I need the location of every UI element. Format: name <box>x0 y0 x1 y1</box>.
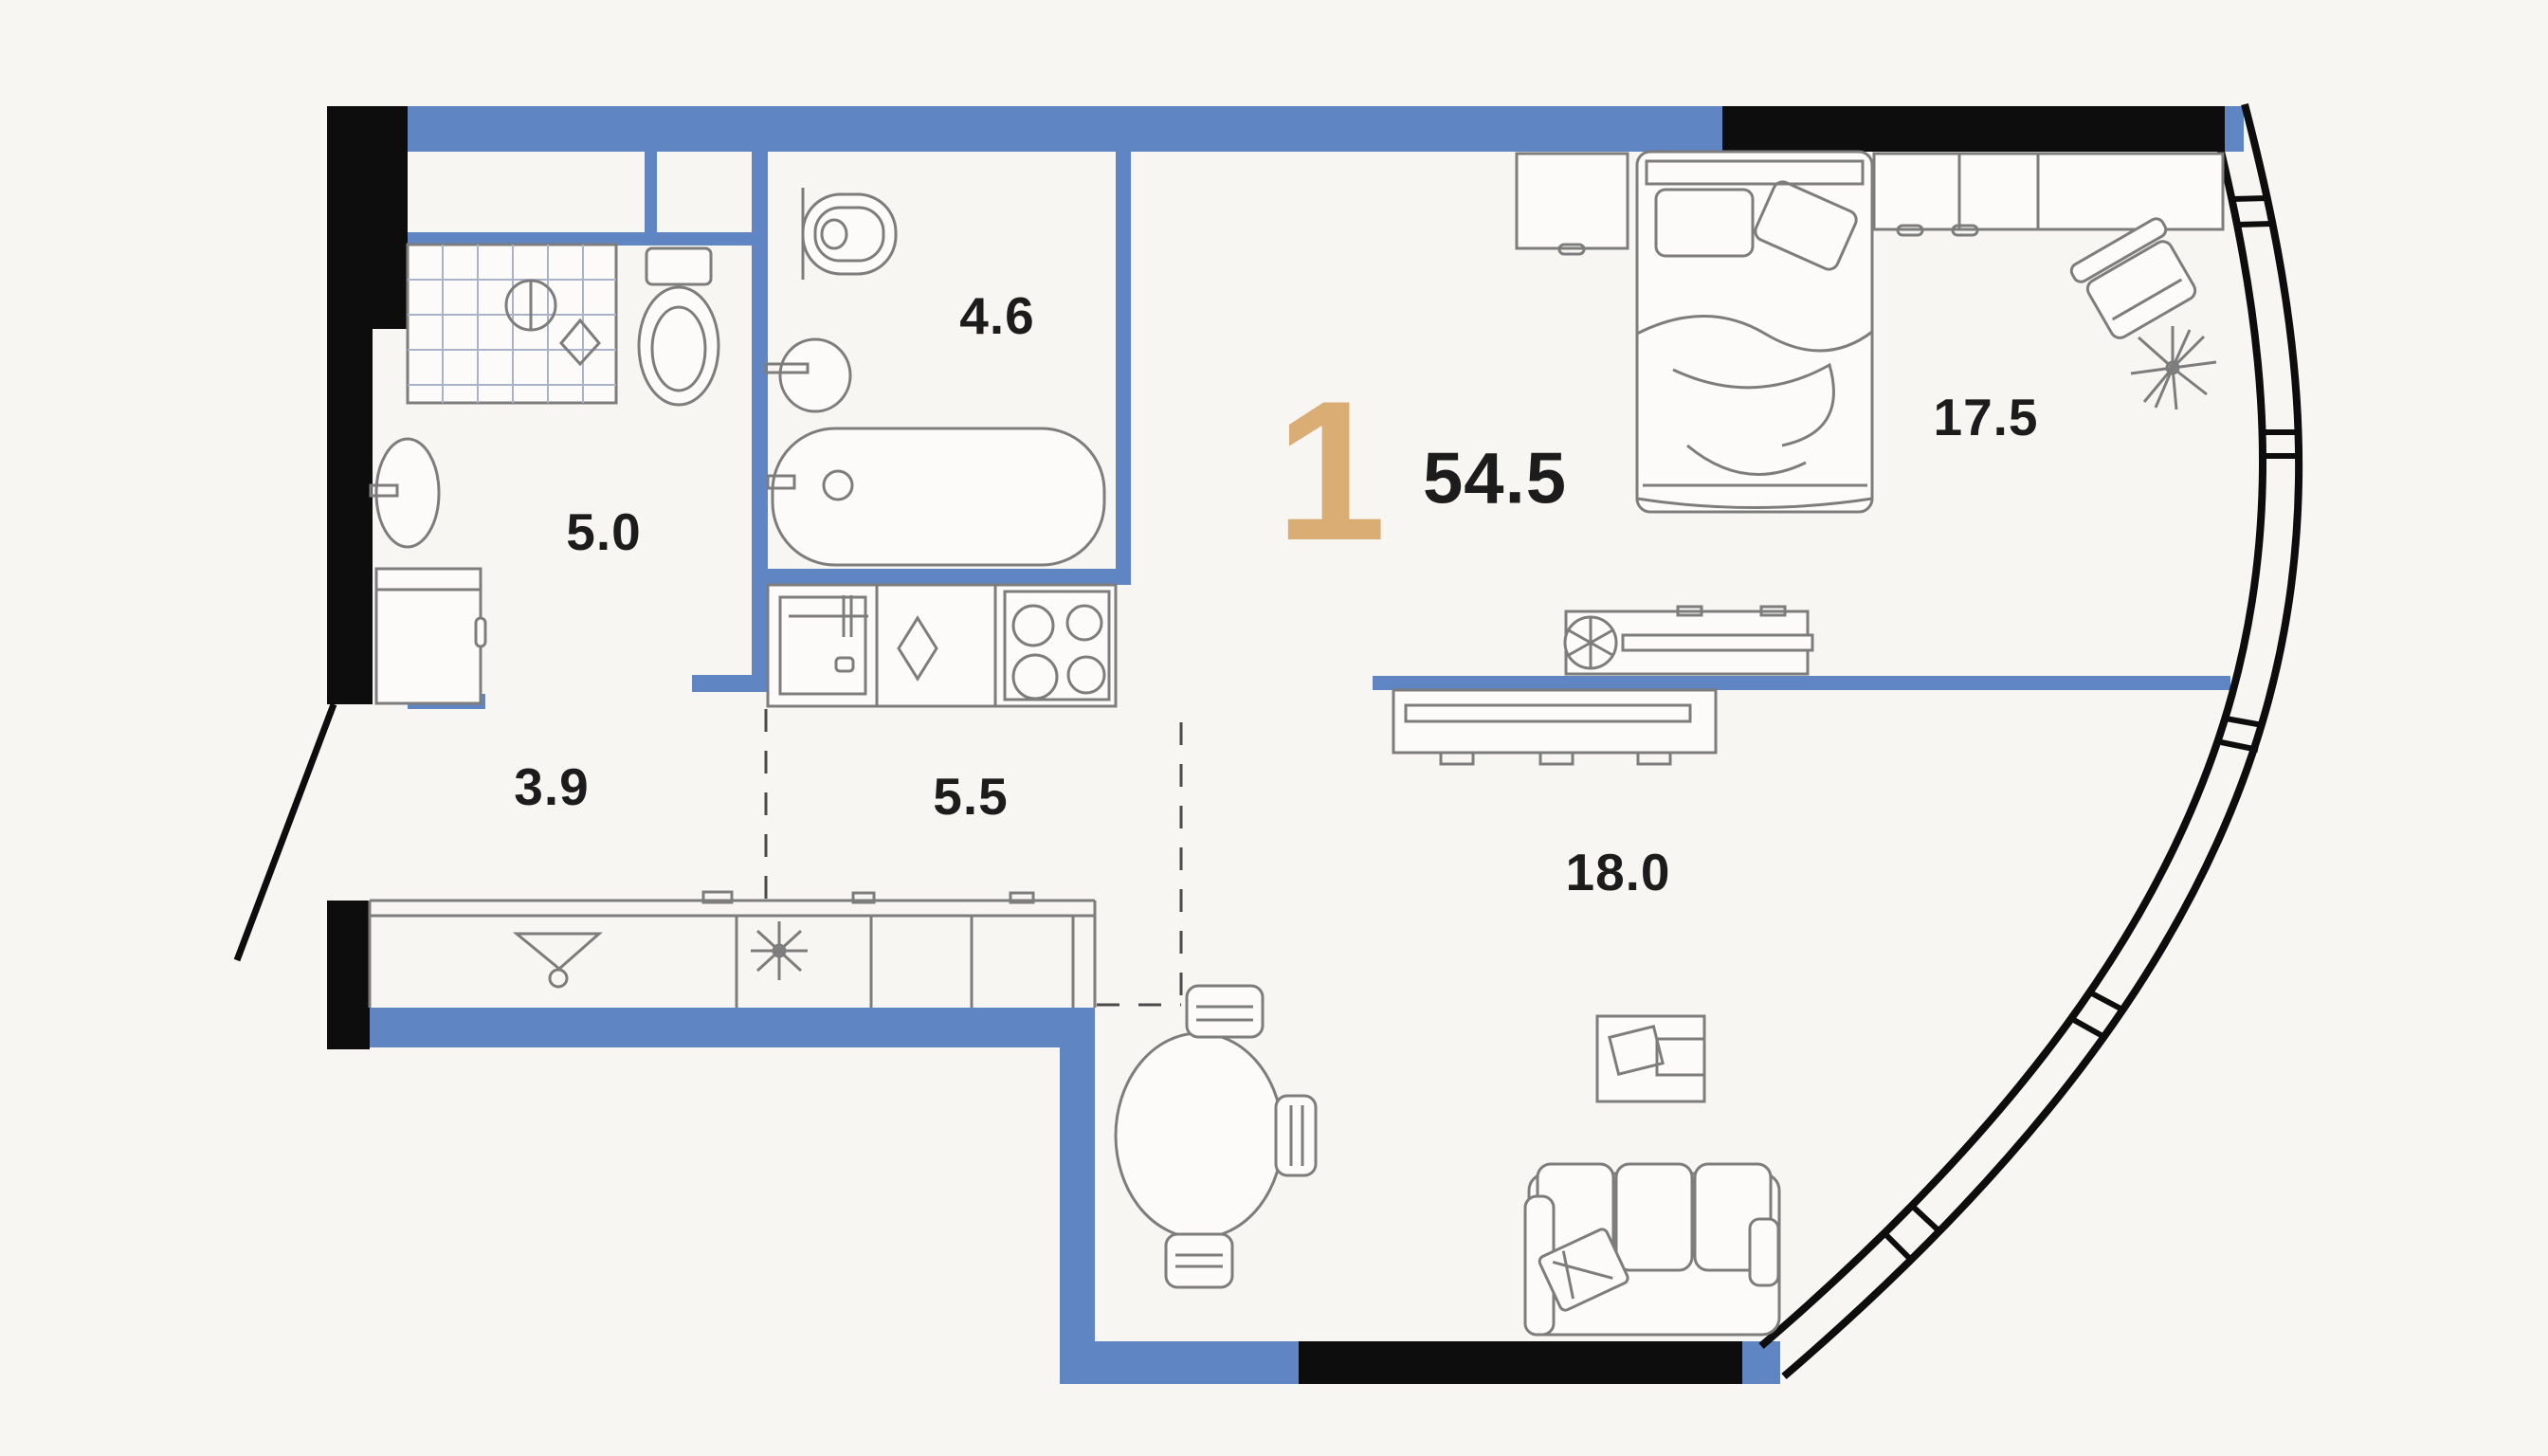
hall-corner-structure <box>327 901 370 1049</box>
shaft-divider <box>645 152 657 246</box>
living-west-wall <box>1060 1047 1095 1384</box>
floorplan-drawing <box>0 0 2548 1456</box>
hanger-icon <box>517 934 599 987</box>
bathroom-east-wall <box>1116 152 1131 585</box>
unit-number-label: 1 <box>1276 372 1387 571</box>
nightstand-left <box>1517 154 1628 254</box>
sofa <box>1525 1164 1779 1335</box>
nightstand-right <box>1874 154 1959 235</box>
tv-console-bedroom <box>1565 607 1812 674</box>
masonry-walls <box>370 106 2244 1384</box>
shower <box>408 245 616 403</box>
toilet-bathroom <box>803 188 896 280</box>
room-area-label-bathroom: 4.6 <box>959 285 1034 346</box>
bottom-wall-left <box>1060 1341 1299 1384</box>
coffee-table <box>1597 1016 1704 1101</box>
top-wall <box>408 106 1722 152</box>
washing-machine <box>376 569 485 703</box>
kitchen-zone-boundary <box>766 709 1181 1005</box>
room-area-label-kitchen: 5.5 <box>933 766 1008 827</box>
washbasin-bathroom <box>766 339 850 411</box>
plant-icon <box>2131 326 2216 409</box>
room-area-label-hallway: 3.9 <box>514 756 589 817</box>
bed <box>1637 152 1872 512</box>
wardrobe <box>370 892 1095 1008</box>
room-area-label-living-room: 18.0 <box>1565 842 1670 902</box>
fan-icon <box>751 921 808 980</box>
dining-chair-right <box>1276 1096 1316 1175</box>
room-area-label-bedroom: 17.5 <box>1933 387 2038 447</box>
top-wall-end <box>2225 106 2244 152</box>
bathtub <box>768 428 1104 565</box>
bottom-wall-structure <box>1299 1341 1742 1384</box>
bedroom-living-divider <box>1373 676 2230 690</box>
dining-chair-top <box>1187 986 1263 1037</box>
dining-table <box>1116 1033 1283 1238</box>
washbasin-shower-room <box>371 439 439 547</box>
bathroom-west-wall <box>752 152 768 692</box>
dining-chair-bottom <box>1166 1234 1232 1287</box>
floorplan-canvas: 1 54.5 4.6 5.0 3.9 5.5 17.5 18.0 <box>0 0 2548 1456</box>
toilet-shower-room <box>639 248 719 405</box>
total-area-label: 54.5 <box>1423 438 1567 520</box>
kitchen-counter <box>768 585 1116 706</box>
media-console-living <box>1393 690 1716 764</box>
bottom-wall-right <box>1742 1341 1780 1384</box>
desk <box>1953 154 2223 235</box>
kitchen-stub-wall <box>692 675 755 692</box>
left-wall-structure-lower <box>327 329 373 704</box>
entrance-door <box>237 704 334 960</box>
left-wall-structure-upper <box>327 106 408 329</box>
top-wall-structure-right <box>1722 106 2225 152</box>
hallway-south-wall <box>370 1008 1095 1047</box>
desk-chair <box>2068 216 2202 344</box>
bathroom-south-wall <box>752 569 1130 585</box>
room-area-label-shower-room: 5.0 <box>566 501 641 562</box>
